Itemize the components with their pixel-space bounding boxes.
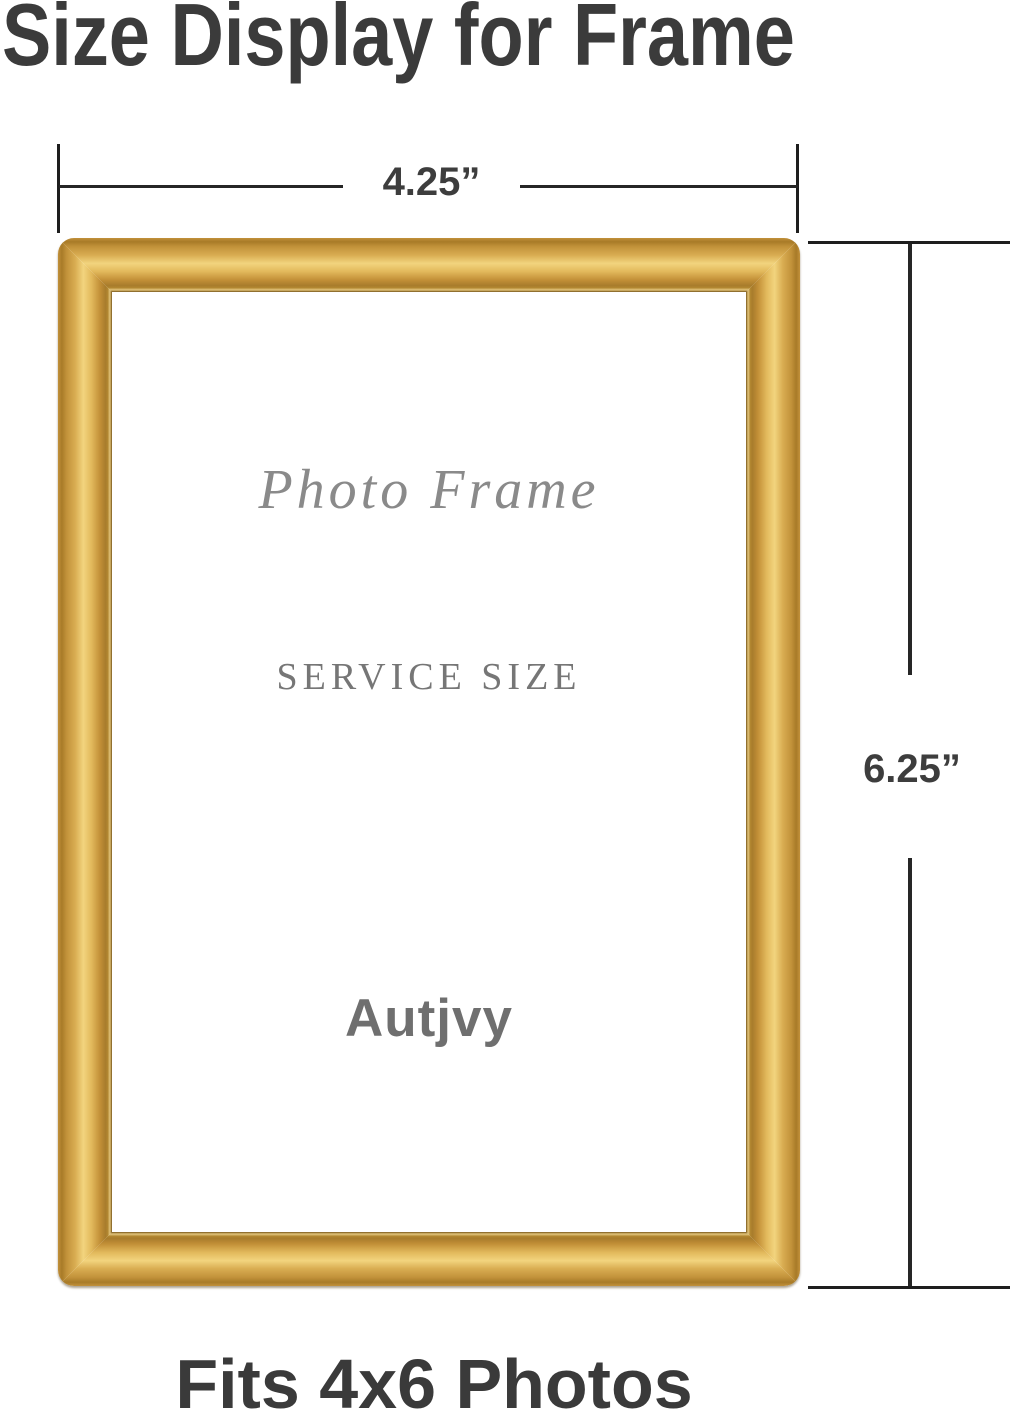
- size-diagram-image: Size Display for Frame 4.25” Photo Frame…: [0, 0, 1013, 1417]
- height-dimension-line-bottom: [908, 858, 912, 1286]
- frame-molding-left: [58, 238, 112, 1286]
- frame-service-size-text: SERVICE SIZE: [58, 654, 800, 700]
- frame-molding-bottom: [58, 1232, 800, 1286]
- frame-molding-top: [58, 238, 800, 292]
- frame-opening-edge: [111, 291, 747, 1233]
- height-dimension-bottom-tick: [808, 1286, 1010, 1289]
- width-dimension-line-left: [59, 185, 343, 188]
- width-dimension-left-tick: [57, 144, 60, 233]
- height-dimension-label: 6.25”: [832, 747, 992, 791]
- width-dimension-right-tick: [796, 144, 799, 233]
- footer-caption: Fits 4x6 Photos: [58, 1348, 810, 1417]
- frame-brand-text: Autjvy: [58, 988, 800, 1050]
- page-title: Size Display for Frame: [2, 0, 795, 76]
- frame-molding-right: [746, 238, 800, 1286]
- width-dimension-label: 4.25”: [343, 160, 520, 204]
- width-dimension-line-right: [520, 185, 798, 188]
- frame-script-text: Photo Frame: [58, 458, 800, 522]
- height-dimension-line-top: [908, 244, 912, 675]
- photo-frame: [58, 238, 800, 1286]
